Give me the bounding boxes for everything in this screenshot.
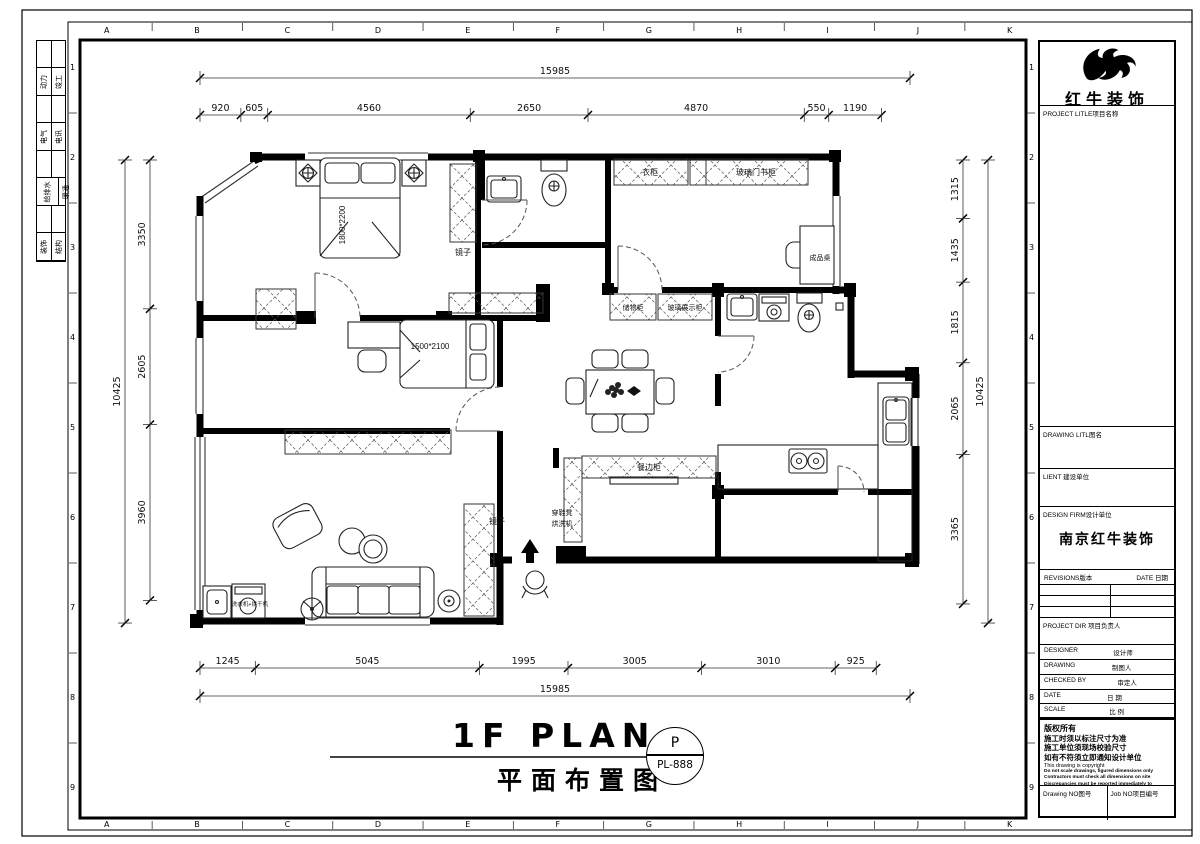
drawing-number-bubble: P PL-888 (646, 727, 704, 785)
storage-label: 储物柜 (623, 303, 644, 312)
checked-cn: 审定人 (1117, 677, 1137, 687)
copyright-section: 版权所有 施工时须以标注尺寸为准 施工单位须现场校验尺寸 如有不符须立即通知设计… (1040, 718, 1174, 786)
grid-letter: C (285, 820, 291, 829)
shoe-bench-cabinet (564, 458, 582, 542)
revision-row (1040, 595, 1174, 606)
job-no-label: Job NO项目编号 (1108, 786, 1175, 820)
numbers-section: Drawing NO图号 Job NO项目编号 (1040, 786, 1174, 820)
kitchen-sink (883, 397, 909, 445)
balcony-sink (203, 586, 231, 618)
grid-letter: K (1007, 26, 1012, 35)
dimension-label: 4870 (684, 103, 708, 114)
discipline-row: 给排水暖通 (37, 178, 65, 206)
grid-number: 7 (1029, 603, 1034, 612)
nightstand-right (402, 160, 426, 186)
sofa (312, 567, 434, 617)
company-logo-icon (1052, 43, 1162, 83)
discipline-cell: 电气 (37, 123, 52, 150)
wall-piers (190, 150, 919, 628)
dimension-label: 10425 (112, 376, 123, 406)
drawing-cn: 制图人 (1112, 662, 1132, 672)
dimension-label: 15985 (540, 684, 570, 695)
drawing-sheet: 1800*2200 1500*2100 镜子 镜子 衣柜 玻璃门书柜 成品桌 储… (0, 0, 1200, 844)
entry-arrow (521, 539, 539, 563)
drawing-title-en: 1F PLAN (452, 716, 656, 755)
revisions-section: REVISIONS版本 DATE 日期 (1040, 570, 1174, 618)
dimension-label: 550 (807, 103, 825, 114)
bath1-sink (487, 176, 521, 202)
grid-number: 6 (1029, 513, 1034, 522)
project-title-section: PROJECT LITLE项目名称 (1040, 106, 1174, 427)
discipline-strip: 动力竣工电气电讯给排水暖通装饰结构 (36, 40, 66, 262)
date-cn: 日 期 (1107, 692, 1122, 702)
revision-row (1040, 606, 1174, 617)
designer-section: DESIGNER设计师 (1040, 645, 1174, 660)
tv-cabinet (285, 430, 451, 454)
dimension-label: 925 (847, 656, 865, 667)
date-col-label: DATE 日期 (1136, 572, 1168, 582)
mirror-label-2: 镜子 (489, 516, 505, 526)
client-label: LIENT 建设单位 (1040, 469, 1174, 481)
grid-number: 7 (70, 603, 75, 612)
bath2-sink (727, 294, 757, 320)
mirror-label-1: 镜子 (455, 247, 471, 257)
dimension-label: 3350 (137, 222, 148, 246)
scale-section: SCALE比 例 (1040, 704, 1174, 718)
dimension-label: 1995 (512, 656, 536, 667)
grid-number: 4 (70, 333, 75, 342)
entry-stool (522, 571, 548, 598)
lounge-chair (270, 501, 325, 552)
grid-number: 5 (70, 423, 75, 432)
copyright-line: 如有不符须立即通知设计单位 (1044, 753, 1170, 762)
grid-number: 5 (1029, 423, 1034, 432)
date-label: DATE (1044, 692, 1061, 702)
bedroom2-desk (348, 322, 400, 372)
dimension-label: 1190 (843, 103, 867, 114)
second-bed-size: 1500*2100 (411, 342, 450, 351)
discipline-cell: 暖通 (59, 178, 73, 205)
grid-letter: F (556, 820, 561, 829)
kitchen-counter (718, 383, 912, 561)
dimension-label: 3365 (950, 517, 961, 541)
glass-bookcase-label: 玻璃门书柜 (736, 167, 776, 177)
design-firm-section: DESIGN FIRM设计单位 南京红牛装饰 (1040, 507, 1174, 570)
dimension-label: 5045 (355, 656, 379, 667)
floor-plant (438, 590, 460, 612)
drawing-person-section: DRAWING制图人 (1040, 660, 1174, 675)
grid-number: 2 (1029, 153, 1034, 162)
designer-label: DESIGNER (1044, 647, 1078, 657)
dimension-label: 2605 (137, 355, 148, 379)
washer-label: 洗衣机+烘干机 (232, 600, 269, 608)
dimension-label: 605 (245, 103, 263, 114)
drawing-title-section: DRAWING LITL图名 (1040, 427, 1174, 469)
grid-letter: A (104, 820, 109, 829)
revisions-label: REVISIONS版本 (1044, 572, 1092, 582)
dimension-label: 4560 (357, 103, 381, 114)
grid-letter: E (465, 26, 470, 35)
drawing-title-label: DRAWING LITL图名 (1040, 427, 1174, 439)
grid-number: 1 (1029, 63, 1034, 72)
grid-letter: G (646, 820, 652, 829)
grid-letter: A (104, 26, 109, 35)
sideboard-label: 餐边柜 (637, 462, 661, 472)
grid-letter: I (826, 26, 828, 35)
grid-letter: B (194, 820, 200, 829)
discipline-cell: 装饰 (37, 233, 52, 260)
dry-wash-label: 烘洗机 (552, 519, 573, 528)
dimension-label: 920 (211, 103, 229, 114)
discipline-gap (37, 151, 65, 178)
checked-by-section: CHECKED BY审定人 (1040, 675, 1174, 690)
discipline-cell: 竣工 (52, 68, 66, 95)
nightstand-left (296, 160, 320, 186)
design-firm-value: 南京红牛装饰 (1040, 529, 1174, 549)
drawing-label: DRAWING (1044, 662, 1075, 672)
grid-letter: F (556, 26, 561, 35)
dimension-label: 1435 (950, 238, 961, 262)
grid-number: 2 (70, 153, 75, 162)
dimension-label: 15985 (540, 66, 570, 77)
grid-letter: K (1007, 820, 1012, 829)
grid-letter: H (736, 820, 742, 829)
grid-letter: B (194, 26, 200, 35)
interior-walls (200, 157, 912, 560)
coffee-tables (339, 528, 387, 563)
grid-letter: G (646, 26, 652, 35)
company-name: 红牛装饰 (1040, 86, 1174, 106)
discipline-gap (37, 96, 65, 123)
discipline-gap (37, 41, 65, 68)
grid-number: 3 (1029, 243, 1034, 252)
grid-number: 9 (1029, 783, 1034, 792)
grid-letter: C (285, 26, 291, 35)
dining-set (566, 350, 674, 432)
grid-letter: J (917, 26, 919, 35)
study-cabinet-cell (690, 159, 706, 185)
dimension-label: 1815 (950, 310, 961, 334)
second-bed (400, 320, 494, 388)
bath1-toilet (541, 160, 567, 206)
discipline-row: 电气电讯 (37, 123, 65, 151)
glass-display-label: 玻璃展示柜 (668, 303, 703, 312)
designer-cn: 设计师 (1113, 647, 1133, 657)
dimension-label: 3005 (623, 656, 647, 667)
wardrobe-label: 衣柜 (642, 167, 658, 177)
grid-letter: J (917, 820, 919, 829)
revision-row (1040, 584, 1174, 595)
grid-letter: D (375, 820, 381, 829)
logo-section: 红牛装饰 (1040, 42, 1174, 106)
discipline-row: 装饰结构 (37, 233, 65, 261)
scale-label: SCALE (1044, 706, 1065, 716)
discipline-cell: 结构 (52, 233, 66, 260)
date-section: DATE日 期 (1040, 690, 1174, 704)
master-wardrobe (450, 164, 476, 242)
grid-number: 8 (70, 693, 75, 702)
bubble-letter: P (647, 735, 703, 751)
shoe-bench-label: 穿鞋凳 (552, 508, 573, 517)
grid-number: 3 (70, 243, 75, 252)
bubble-divider (647, 754, 703, 756)
bedroom2-wardrobe (449, 293, 543, 313)
dimension-label: 1245 (216, 656, 240, 667)
revisions-table (1040, 584, 1174, 617)
master-bed-size: 1800*2200 (338, 205, 347, 244)
balcony-washer (232, 584, 265, 618)
client-section: LIENT 建设单位 (1040, 469, 1174, 507)
grid-number: 1 (70, 63, 75, 72)
bubble-code: PL-888 (647, 759, 703, 771)
design-firm-label: DESIGN FIRM设计单位 (1040, 507, 1174, 519)
drawing-title-cn: 平面布置图 (497, 761, 667, 797)
grid-letter: I (826, 820, 828, 829)
dimension-label: 2065 (950, 397, 961, 421)
desk-label: 成品桌 (810, 253, 831, 262)
dimension-label: 2650 (517, 103, 541, 114)
discipline-gap (37, 206, 65, 233)
grid-letter: E (465, 820, 470, 829)
project-title-label: PROJECT LITLE项目名称 (1040, 106, 1174, 118)
dimension-label: 3010 (756, 656, 780, 667)
copyright-line: 版权所有 (1044, 723, 1170, 734)
bath2-washer (759, 294, 789, 321)
discipline-cell: 给排水 (37, 178, 59, 205)
project-dir-section: PROJECT DIR 项目负责人 (1040, 618, 1174, 645)
grid-number: 8 (1029, 693, 1034, 702)
grid-number: 4 (1029, 333, 1034, 342)
grid-letter: H (736, 26, 742, 35)
grid-letter: D (375, 26, 381, 35)
grid-number: 6 (70, 513, 75, 522)
drawing-no-label: Drawing NO图号 (1040, 786, 1108, 820)
checked-label: CHECKED BY (1044, 677, 1086, 687)
project-dir-label: PROJECT DIR 项目负责人 (1040, 618, 1174, 630)
dimension-label: 10425 (975, 376, 986, 406)
scale-cn: 比 例 (1109, 706, 1124, 716)
dimension-label: 3960 (137, 500, 148, 524)
dimension-label: 1315 (950, 177, 961, 201)
title-block: 红牛装饰 PROJECT LITLE项目名称 DRAWING LITL图名 LI… (1038, 40, 1176, 818)
discipline-cell: 电讯 (52, 123, 66, 150)
master-dresser (256, 289, 296, 329)
master-bed (320, 158, 400, 258)
copyright-line: 施工时须以标注尺寸为准 (1044, 734, 1170, 743)
discipline-row: 动力竣工 (37, 68, 65, 96)
grid-number: 9 (70, 783, 75, 792)
discipline-cell: 动力 (37, 68, 52, 95)
copyright-line: 施工单位须现场校验尺寸 (1044, 743, 1170, 752)
bath2-toilet (797, 293, 843, 332)
